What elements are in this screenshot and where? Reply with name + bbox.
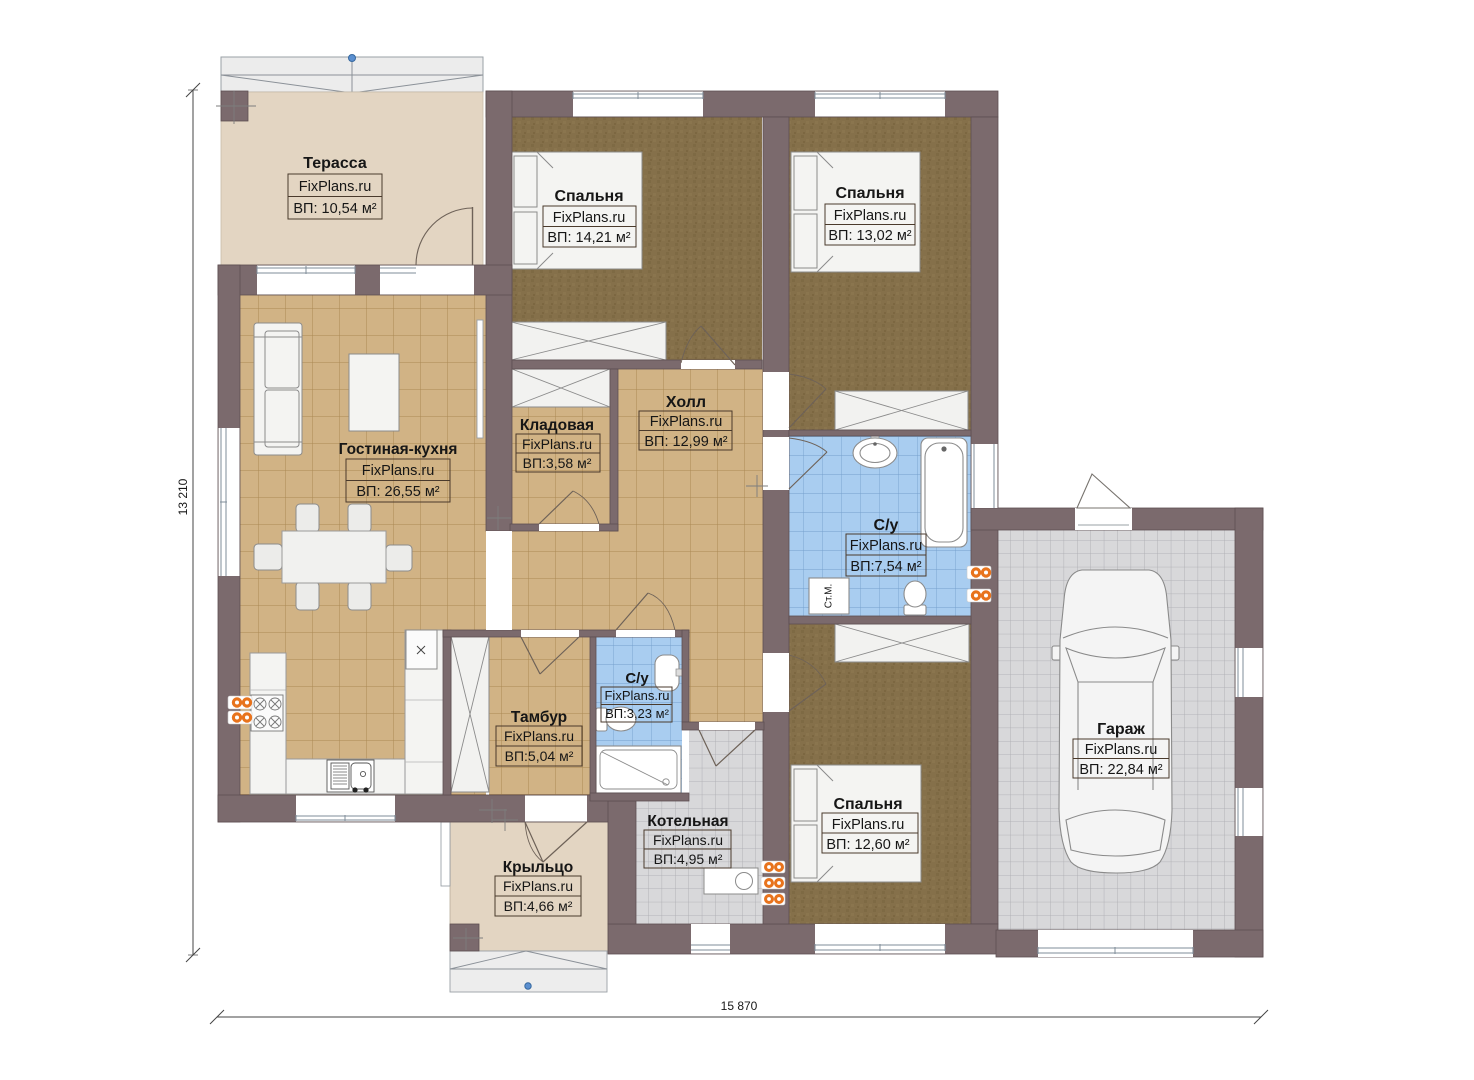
svg-text:ВП:3,58 м²: ВП:3,58 м² bbox=[523, 455, 592, 471]
svg-text:FixPlans.ru: FixPlans.ru bbox=[604, 688, 669, 703]
svg-text:FixPlans.ru: FixPlans.ru bbox=[834, 208, 907, 224]
svg-text:Спальня: Спальня bbox=[833, 796, 902, 813]
svg-text:ВП: 10,54 м²: ВП: 10,54 м² bbox=[293, 201, 376, 217]
svg-text:FixPlans.ru: FixPlans.ru bbox=[1085, 742, 1158, 758]
svg-text:Тамбур: Тамбур bbox=[511, 709, 567, 726]
svg-text:ВП:4,66 м²: ВП:4,66 м² bbox=[504, 898, 573, 914]
svg-text:FixPlans.ru: FixPlans.ru bbox=[522, 436, 592, 452]
svg-text:ВП: 22,84 м²: ВП: 22,84 м² bbox=[1079, 762, 1162, 778]
svg-text:Ст.М.: Ст.М. bbox=[824, 584, 835, 609]
svg-text:ВП:3,23 м²: ВП:3,23 м² bbox=[605, 706, 669, 721]
svg-text:Гараж: Гараж bbox=[1097, 721, 1145, 738]
svg-text:FixPlans.ru: FixPlans.ru bbox=[503, 878, 573, 894]
svg-text:FixPlans.ru: FixPlans.ru bbox=[850, 538, 923, 554]
svg-text:С/у: С/у bbox=[874, 517, 899, 534]
svg-text:FixPlans.ru: FixPlans.ru bbox=[553, 210, 626, 226]
svg-text:Спальня: Спальня bbox=[835, 185, 904, 202]
svg-text:ВП: 26,55 м²: ВП: 26,55 м² bbox=[356, 484, 439, 500]
svg-text:Терасса: Терасса bbox=[303, 155, 367, 172]
svg-text:ВП: 14,21 м²: ВП: 14,21 м² bbox=[547, 230, 630, 246]
svg-text:FixPlans.ru: FixPlans.ru bbox=[504, 728, 574, 744]
svg-text:ВП: 13,02 м²: ВП: 13,02 м² bbox=[828, 228, 911, 244]
svg-text:FixPlans.ru: FixPlans.ru bbox=[832, 817, 905, 833]
svg-text:ВП:7,54 м²: ВП:7,54 м² bbox=[850, 559, 921, 575]
svg-text:Кладовая: Кладовая bbox=[520, 417, 594, 434]
svg-text:Холл: Холл bbox=[666, 394, 706, 411]
svg-text:ВП:5,04 м²: ВП:5,04 м² bbox=[505, 748, 574, 764]
svg-text:Котельная: Котельная bbox=[647, 813, 728, 830]
svg-text:ВП: 12,99 м²: ВП: 12,99 м² bbox=[644, 434, 727, 450]
svg-text:FixPlans.ru: FixPlans.ru bbox=[299, 179, 372, 195]
svg-text:С/у: С/у bbox=[625, 670, 649, 687]
svg-text:13 210: 13 210 bbox=[176, 478, 190, 515]
svg-text:Крыльцо: Крыльцо bbox=[503, 859, 574, 876]
svg-text:Гостиная-кухня: Гостиная-кухня bbox=[339, 441, 458, 458]
svg-text:FixPlans.ru: FixPlans.ru bbox=[653, 832, 723, 848]
svg-text:Спальня: Спальня bbox=[554, 188, 623, 205]
svg-text:FixPlans.ru: FixPlans.ru bbox=[362, 463, 435, 479]
svg-text:ВП: 12,60 м²: ВП: 12,60 м² bbox=[826, 837, 909, 853]
svg-text:FixPlans.ru: FixPlans.ru bbox=[650, 414, 723, 430]
svg-text:ВП:4,95 м²: ВП:4,95 м² bbox=[654, 851, 723, 867]
svg-text:15 870: 15 870 bbox=[721, 999, 758, 1013]
